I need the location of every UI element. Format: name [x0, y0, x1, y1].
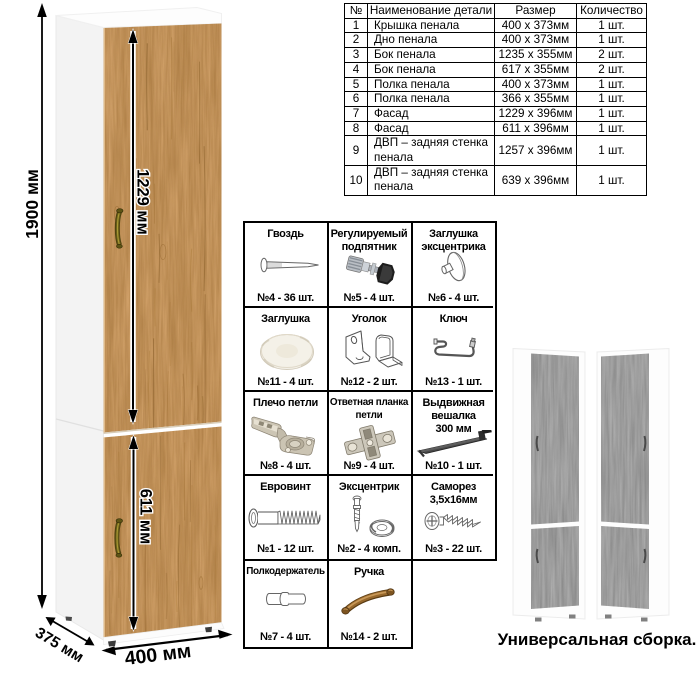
svg-text:1900 мм: 1900 мм: [22, 169, 42, 239]
svg-text:1229 мм: 1229 мм: [134, 169, 152, 235]
svg-text:375 мм: 375 мм: [32, 624, 86, 666]
svg-text:400 мм: 400 мм: [124, 640, 193, 670]
svg-text:611 мм: 611 мм: [137, 489, 155, 545]
